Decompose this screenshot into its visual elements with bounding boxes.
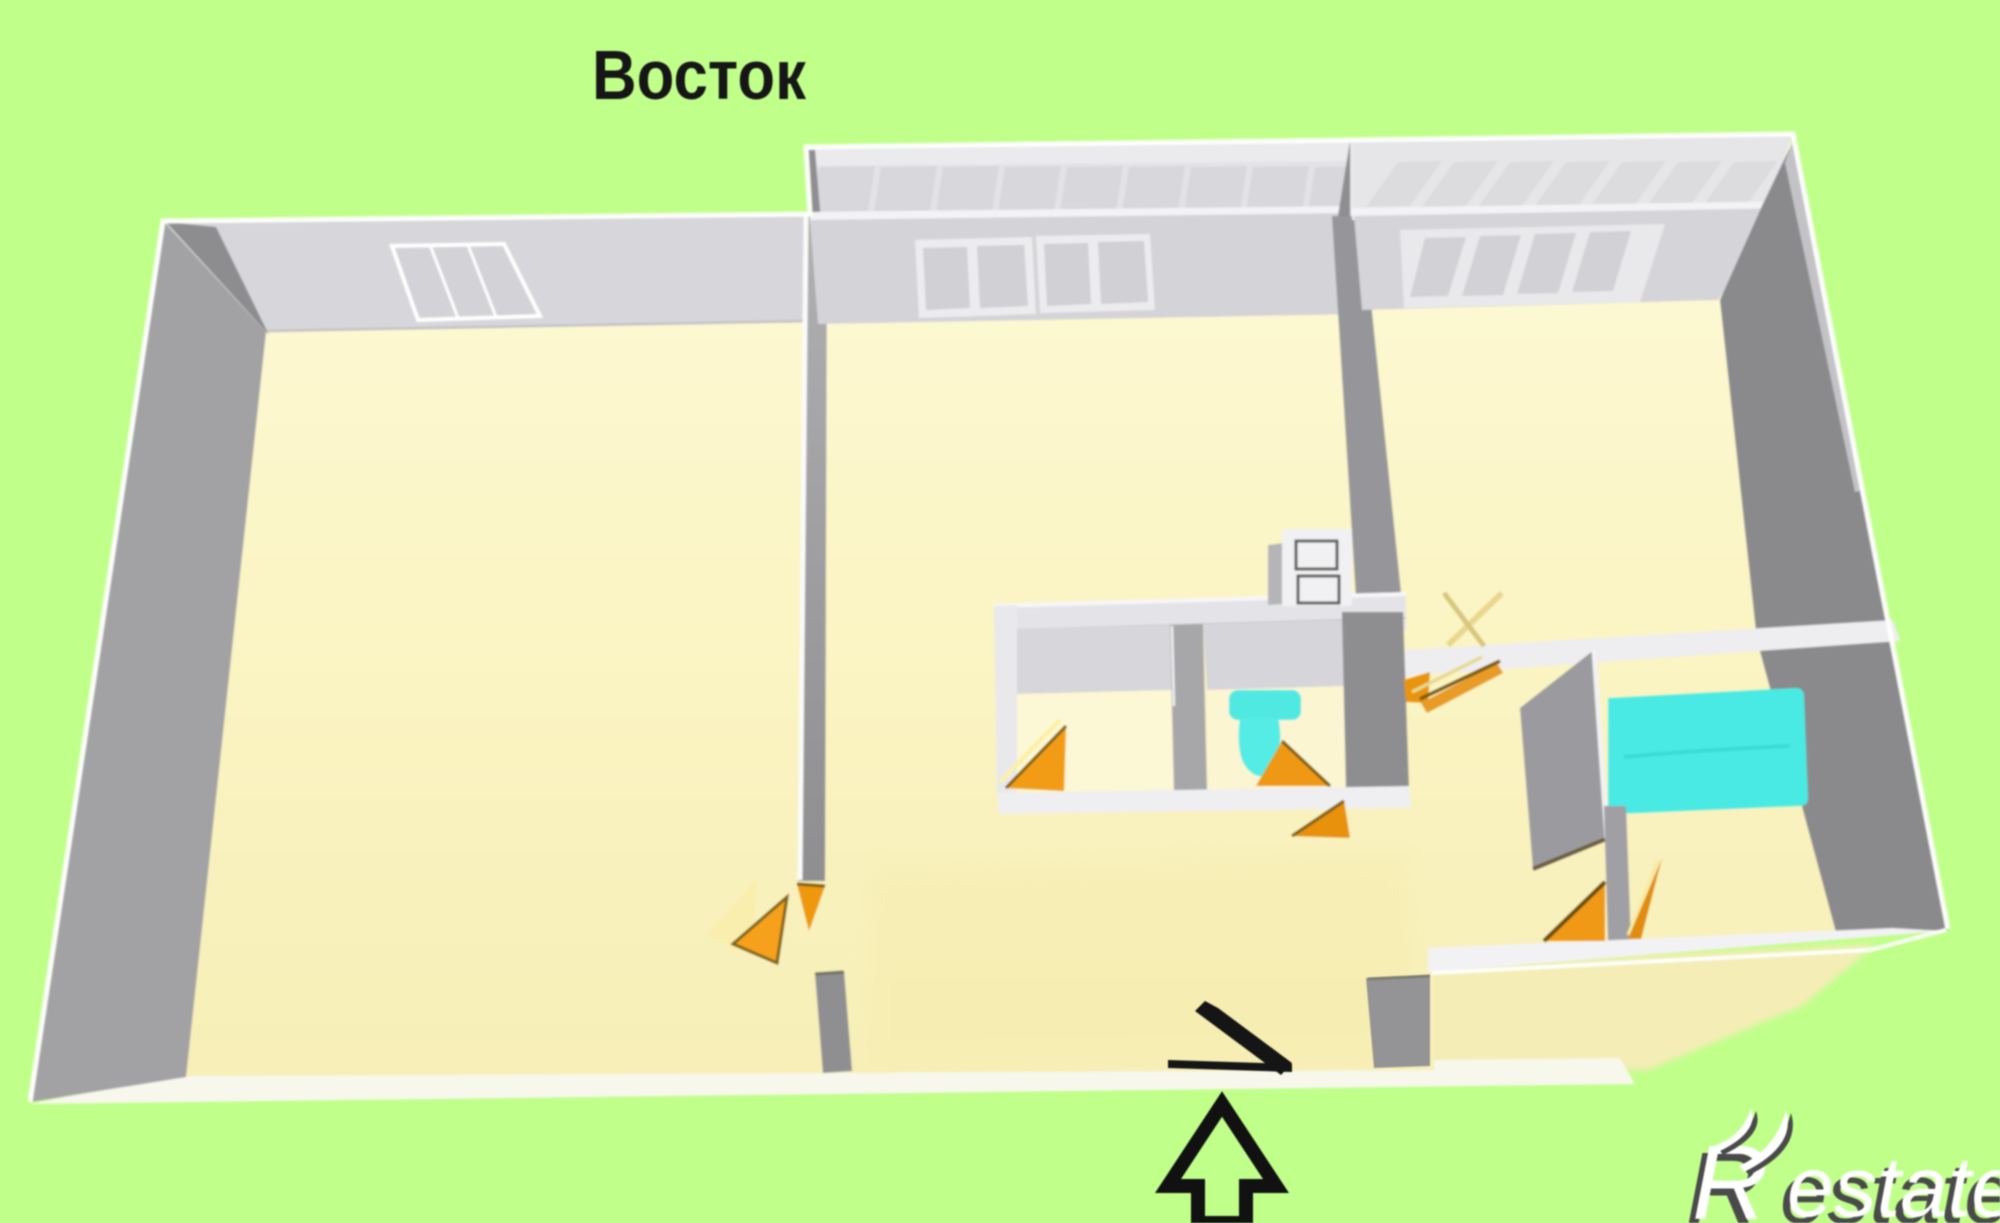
svg-text:Восток: Восток (592, 36, 807, 114)
svg-text:estate: estate (1787, 1140, 2000, 1223)
